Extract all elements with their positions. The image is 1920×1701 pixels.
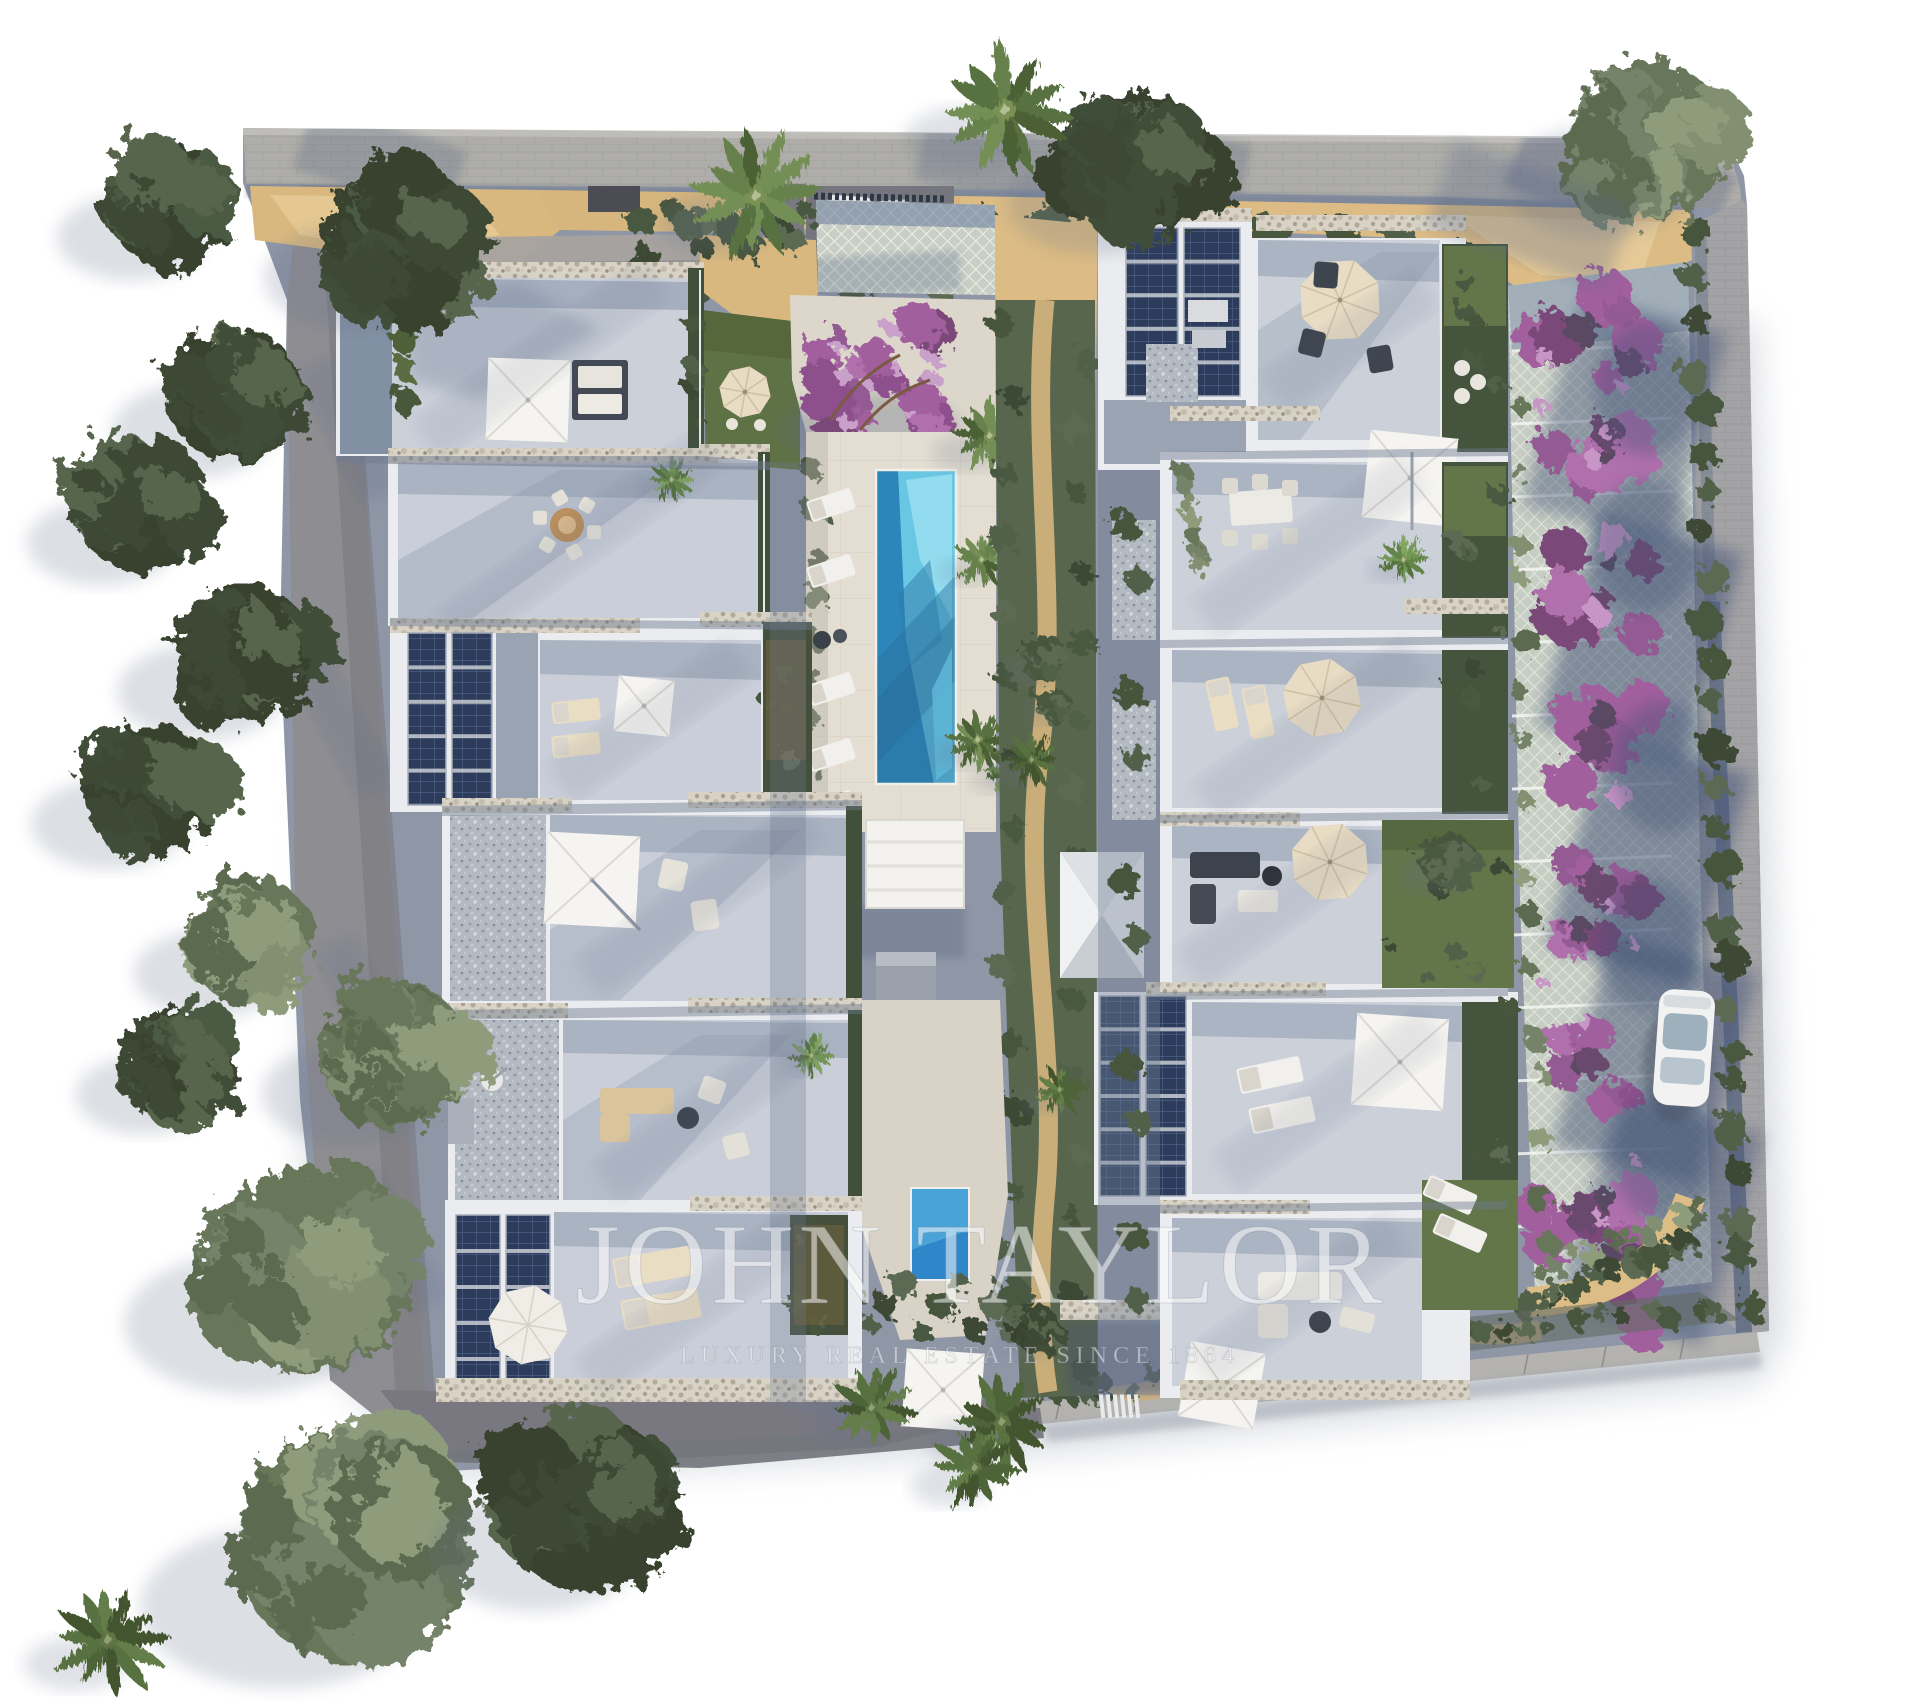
svg-text:LUXURY REAL ESTATE SINCE 1864: LUXURY REAL ESTATE SINCE 1864 xyxy=(680,1343,1240,1369)
svg-text:JOHN TAYLOR: JOHN TAYLOR xyxy=(575,1201,1386,1328)
